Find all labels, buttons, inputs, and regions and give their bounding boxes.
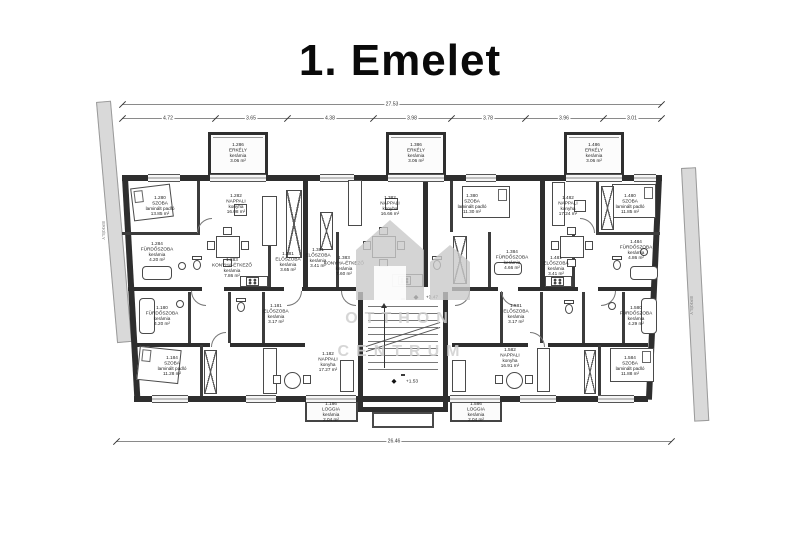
door-arc (455, 291, 470, 306)
sofa-icon (537, 348, 550, 392)
room-label-szoba: 1.184SZOBAlaminált padló11.28 m² (158, 355, 187, 376)
door-arc (341, 291, 356, 306)
toilet-bowl (193, 260, 201, 270)
window (148, 174, 180, 182)
sofa-icon (262, 196, 277, 246)
pillow-icon (141, 349, 151, 362)
chair-icon (551, 241, 559, 250)
room-label-szoba: 1.280SZOBAlaminált padló13.85 m² (146, 195, 175, 216)
room-label-nappali: 1.182NAPPALIkonyha17.27 m² (318, 351, 337, 372)
corridor-wall (518, 287, 578, 291)
dim-value-top-total: 27.53 (384, 101, 399, 107)
level-marker-icon: ◆ (414, 293, 419, 300)
wardrobe-icon (320, 212, 333, 250)
dim-value-segment: 3.65 (245, 115, 257, 121)
dim-value-segment: 3.01 (626, 115, 638, 121)
kitchen-counter (340, 360, 354, 392)
room-label-szoba: 1.480SZOBAlaminált padló11.85 m² (616, 193, 645, 214)
page-title: 1. Emelet (0, 36, 800, 86)
dining-table-icon (372, 236, 396, 258)
room-label-erkely: 1.486ERKÉLYkerámia3.06 m² (585, 142, 603, 163)
chair-icon (585, 241, 593, 250)
room-label-furdoszoba: 1.580FÜRDŐSZOBAkerámia4.29 m² (620, 305, 652, 326)
wardrobe-icon (584, 350, 596, 394)
right-neighbour-strip (681, 167, 709, 421)
dim-tick (668, 438, 675, 445)
chair-icon (567, 227, 576, 235)
toilet-bowl (237, 302, 245, 312)
pillow-icon (644, 187, 653, 199)
partition-wall (122, 232, 200, 235)
window (152, 395, 188, 403)
round-table-icon (506, 372, 523, 389)
balcony-door-window (388, 174, 444, 182)
balcony-door-window (566, 174, 622, 182)
door-arc (287, 291, 302, 306)
right-strip-label: ERKÉLY (689, 296, 694, 315)
balcony-railing (213, 137, 263, 138)
room-label-szoba: 1.380SZOBAlaminált padló11.30 m² (458, 193, 487, 214)
watermark-text-line1: OTTHON (345, 310, 455, 328)
stove-icon (398, 276, 411, 285)
room-label-loggia: 1.186LOGGIAkerámia2.04 m² (322, 401, 340, 422)
dim-value-bottom-total: 26.46 (386, 438, 401, 444)
party-wall (423, 181, 428, 287)
room-label-nappali: 1.282NAPPALIkonyha16.08 m² (226, 193, 245, 214)
room-label-eloszoba: 1.481ELŐSZOBAkerámia3.41 m² (543, 255, 568, 276)
room-label-furdoszoba: 1.484FÜRDŐSZOBAkerámia4.86 m² (620, 239, 652, 260)
room-label-nappali: 1.482NAPPALIkonyha17.24 m² (558, 195, 577, 216)
dining-table-icon (216, 236, 240, 258)
window (598, 395, 634, 403)
toilet-bowl (433, 260, 441, 270)
dim-value-segment: 3.78 (482, 115, 494, 121)
partition-wall (188, 292, 191, 343)
outer-wall-bottom (134, 396, 648, 402)
chair-icon (223, 227, 232, 235)
chair-icon (241, 241, 249, 250)
room-label-nappali: 1.582NAPPALIkonyha16.91 m² (500, 347, 519, 368)
left-strip-label: ERKÉLY (101, 221, 106, 240)
toilet-icon (564, 300, 574, 314)
room-label-furdoszoba: 1.284FÜRDŐSZOBAkerámia4.20 m² (141, 241, 173, 262)
room-label-konyha-etkezo: 1.283KONYHA-ÉTKEZŐkerámia7.86 m² (212, 257, 252, 278)
door-arc (191, 291, 206, 306)
level-marker-icon: ◆ (392, 377, 397, 384)
stair-entry-landing (372, 412, 434, 428)
room-label-szoba: 1.584SZOBAlaminált padló11.88 m² (616, 355, 645, 376)
room-label-eloszoba: 1.381ELŐSZOBAkerámia3.41 m² (305, 247, 330, 268)
door-arc (580, 218, 595, 233)
room-label-eloszoba: 1.181ELŐSZOBAkerámia3.17 m² (263, 303, 288, 324)
stair-level-lower: +1.53 (406, 378, 418, 383)
balcony-railing (569, 137, 619, 138)
partition-wall (450, 181, 453, 232)
partition-wall (598, 345, 601, 396)
dim-tick (658, 101, 665, 108)
window (246, 395, 276, 403)
wardrobe-icon (204, 350, 217, 394)
dim-value-segment: 3.98 (406, 115, 418, 121)
chair-icon (379, 259, 388, 267)
dim-value-segment: 4.38 (324, 115, 336, 121)
watermark-text-line2: CENTRUM (338, 343, 467, 361)
toilet-icon (432, 256, 442, 270)
interior-wall (230, 343, 305, 347)
door-arc (211, 332, 226, 347)
bathtub-icon (142, 266, 172, 280)
room-label-furdoszoba: 1.180FÜRDŐSZOBAkerámia4.20 m² (146, 305, 178, 326)
partition-wall (582, 292, 585, 343)
bathtub-icon (630, 266, 658, 280)
chair-icon (525, 375, 533, 384)
toilet-bowl (613, 260, 621, 270)
toilet-bowl (565, 304, 573, 314)
window (520, 395, 556, 403)
chair-icon (363, 241, 371, 250)
stair-level-upper: +3.47 (426, 294, 438, 299)
party-wall (303, 181, 308, 287)
corridor-wall (224, 287, 284, 291)
window (634, 174, 656, 182)
chair-icon (379, 227, 388, 235)
wardrobe-icon (453, 236, 467, 284)
dimension-line-top-segments (122, 118, 662, 119)
chair-icon (273, 375, 281, 384)
sink-icon (178, 262, 186, 270)
partition-wall (200, 345, 203, 396)
stair-direction-arrow (381, 303, 387, 308)
chair-icon (303, 375, 311, 384)
partition-wall (228, 292, 231, 343)
window (466, 174, 496, 182)
sink-icon (608, 302, 616, 310)
partition-wall (488, 232, 491, 287)
balcony-door-window (210, 174, 266, 182)
dim-value-segment: 4.72 (162, 115, 174, 121)
toilet-icon (236, 298, 246, 312)
wardrobe-icon (601, 186, 614, 230)
room-label-eloszoba: 1.581ELŐSZOBAkerámia3.17 m² (503, 303, 528, 324)
room-label-eloszoba: 1.281ELŐSZOBAkerámia3.65 m² (275, 251, 300, 272)
room-label-loggia: 1.586LOGGIAkerámia2.04 m² (467, 401, 485, 422)
sofa-icon (263, 348, 277, 394)
floorplan-page: { "title": "1. Emelet", "watermark": { "… (0, 0, 800, 550)
chair-icon (495, 375, 503, 384)
dim-tick (658, 115, 665, 122)
pillow-icon (498, 189, 507, 201)
sofa-icon (348, 180, 362, 226)
balcony-railing (391, 137, 441, 138)
partition-wall (596, 232, 660, 235)
dim-value-segment: 3.96 (558, 115, 570, 121)
kitchen-counter (452, 360, 466, 392)
room-label-erkely: 1.386ERKÉLYkerámia3.06 m² (407, 142, 425, 163)
room-label-erkely: 1.286ERKÉLYkerámia3.06 m² (229, 142, 247, 163)
partition-wall (596, 181, 599, 232)
toilet-icon (192, 256, 202, 270)
wardrobe-icon (286, 190, 302, 258)
room-label-nappali: 1.382NAPPALIkonyha16.66 m² (380, 195, 399, 216)
chair-icon (397, 241, 405, 250)
round-table-icon (284, 372, 301, 389)
chair-icon (207, 241, 215, 250)
pillow-icon (133, 190, 143, 203)
stove-icon (551, 277, 564, 286)
room-label-furdoszoba: 1.384FÜRDŐSZOBAkerámia4.66 m² (496, 249, 528, 270)
